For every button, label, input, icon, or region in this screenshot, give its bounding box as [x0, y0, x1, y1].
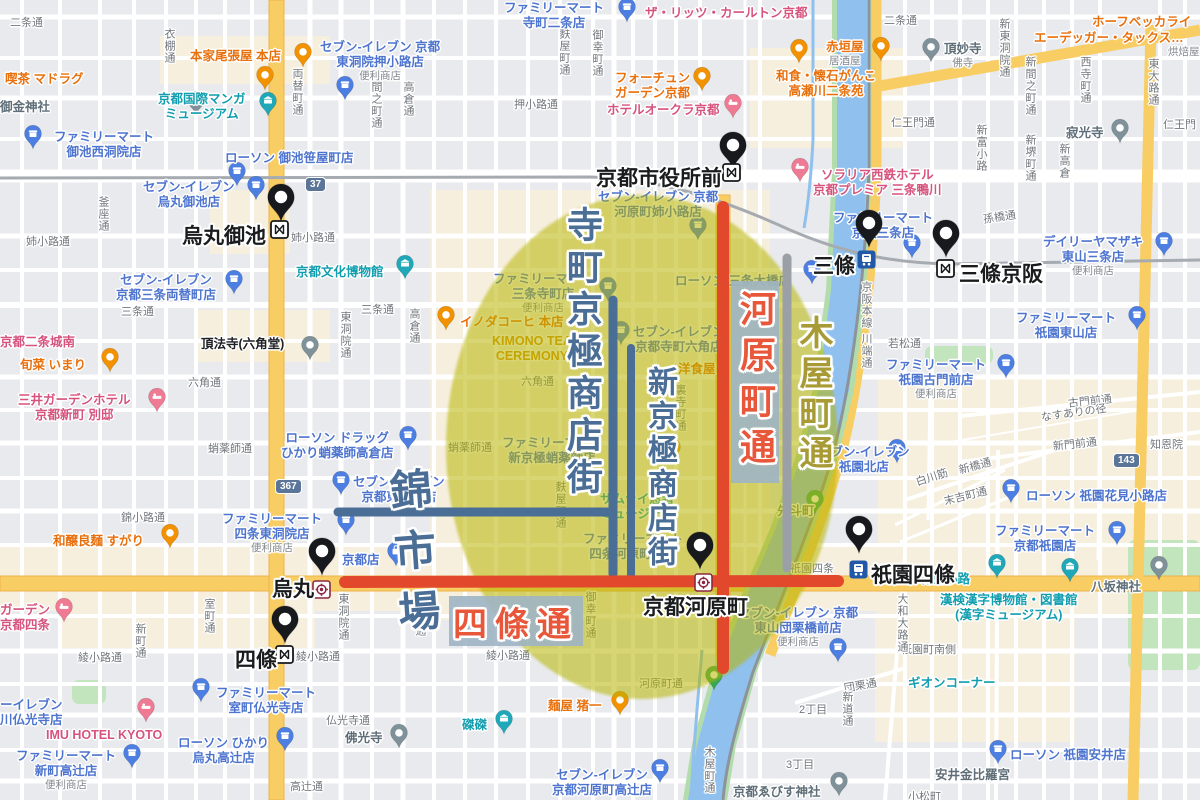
- station-label[interactable]: 祇園四條: [871, 559, 955, 589]
- station-pin[interactable]: [269, 604, 301, 648]
- poi-label[interactable]: ソラリア西鉄ホテル京都プレミア 三条鴨川: [813, 168, 941, 198]
- hankyu-icon: [312, 580, 331, 599]
- poi-pin[interactable]: [395, 254, 415, 282]
- station-label[interactable]: 四條: [235, 644, 277, 674]
- poi-label[interactable]: ファミリーマート御池西洞院店: [54, 130, 154, 160]
- poi-pin[interactable]: [610, 690, 630, 718]
- poi-pin[interactable]: [996, 353, 1016, 381]
- poi-pin[interactable]: [1107, 520, 1127, 548]
- poi-label[interactable]: セブン-イレブン祇園北店: [818, 445, 910, 475]
- poi-pin[interactable]: [336, 510, 356, 538]
- poi-pin[interactable]: [258, 91, 278, 119]
- station-label[interactable]: 烏丸: [272, 573, 314, 603]
- poi-label[interactable]: サムライ忍者ミュージアム: [600, 492, 674, 522]
- poi-label[interactable]: セブン-イレブン京都河原町高辻店: [552, 768, 652, 798]
- poi-pin[interactable]: [436, 305, 456, 333]
- station-label[interactable]: 京都河原町: [643, 591, 748, 621]
- station-label[interactable]: 京都市役所前: [596, 162, 722, 192]
- poi-label[interactable]: ファミリーマート室町仏光寺店: [216, 686, 316, 716]
- poi-label[interactable]: 漢検漢字博物館・図書館(漢字ミュージアム): [940, 593, 1078, 623]
- poi-label[interactable]: KIMONO TEACEREMONY: [492, 334, 572, 364]
- poi-pin[interactable]: [293, 42, 313, 70]
- poi-label[interactable]: 旬菜 いまり: [20, 358, 86, 373]
- poi-label[interactable]: セブン-イレブン烏丸御池店: [143, 180, 235, 210]
- poi-pin[interactable]: [275, 726, 295, 754]
- poi-pin[interactable]: [662, 437, 682, 465]
- poi-pin[interactable]: [598, 276, 618, 304]
- poi-pin[interactable]: [650, 758, 670, 786]
- shijo-dori-road: [0, 576, 1200, 591]
- poi-label[interactable]: IMU HOTEL KYOTO: [46, 728, 162, 743]
- subway-icon: [722, 163, 741, 182]
- poi-pin[interactable]: [1001, 478, 1021, 506]
- poi-pin[interactable]: [1127, 305, 1147, 333]
- poi-pin[interactable]: [790, 157, 810, 185]
- keihan-icon: [849, 560, 868, 579]
- poi-pin[interactable]: [692, 66, 712, 94]
- poi-label[interactable]: 京都文化博物館: [296, 265, 384, 280]
- poi-label[interactable]: 和醸良麺 すがり: [53, 534, 144, 549]
- station-label[interactable]: 三條: [813, 250, 855, 280]
- poi-label[interactable]: セブン-イレブン京都寺町六角店: [633, 325, 725, 355]
- poi-label[interactable]: ファミリーマート祇園東山店: [1016, 311, 1116, 341]
- poi-label[interactable]: 頂法寺(六角堂): [201, 337, 284, 352]
- poi-label[interactable]: 和食・懐石がんこ高瀬川二条苑: [776, 69, 876, 99]
- poi-label[interactable]: ファミリーマート寺町二条店: [504, 1, 604, 31]
- poi-label[interactable]: 烘焙屋: [1168, 46, 1200, 58]
- poi-label[interactable]: 安井金比羅宮: [935, 768, 1010, 783]
- poi-pin[interactable]: [611, 320, 631, 348]
- poi-label[interactable]: ガーデン京都四条: [0, 603, 50, 633]
- poi-pin[interactable]: [23, 124, 43, 152]
- poi-pin[interactable]: [136, 697, 156, 725]
- poi-label[interactable]: セブン-イレブン京都東洞院店: [353, 475, 445, 505]
- poi-label[interactable]: 喫茶 マドラグ: [5, 72, 83, 87]
- poi-label[interactable]: ローソン 祇園花見小路店: [1026, 489, 1167, 504]
- poi-pin[interactable]: [988, 739, 1008, 767]
- poi-label[interactable]: ーイレブン川仏光寺店: [0, 698, 63, 728]
- poi-label[interactable]: イノダコーヒ 本店: [460, 315, 563, 330]
- poi-label[interactable]: 京都国際マンガミュージアム: [158, 92, 246, 122]
- poi-pin[interactable]: [389, 723, 409, 751]
- subway-icon: [936, 259, 955, 278]
- poi-label[interactable]: セブン-イレブン 京都東山団栗橋前店便利商店: [738, 606, 858, 648]
- poi-pin[interactable]: [386, 541, 406, 569]
- poi-pin[interactable]: [54, 597, 74, 625]
- poi-label[interactable]: ローソン 祇園安井店: [1010, 748, 1126, 763]
- poi-pin[interactable]: [871, 36, 891, 64]
- poi-label[interactable]: ファミリーマート四条河原町西店: [583, 532, 683, 562]
- poi-label[interactable]: 頂妙寺佛寺: [944, 42, 982, 69]
- poi-label[interactable]: 麺屋 猪一: [548, 699, 601, 714]
- poi-pin[interactable]: [246, 175, 266, 203]
- poi-pin[interactable]: [122, 743, 142, 771]
- poi-label[interactable]: セブン-イレブン 京都河原町姉小路店: [598, 190, 718, 220]
- poi-pin[interactable]: [147, 387, 167, 415]
- poi-label[interactable]: セブン-イレブン 京都東洞院押小路店便利商店: [320, 40, 440, 82]
- poi-pin[interactable]: [704, 665, 724, 693]
- poi-pin[interactable]: [224, 269, 244, 297]
- poi-label[interactable]: 磔磔: [462, 718, 487, 733]
- poi-label[interactable]: ローソン ひかり烏丸高辻店: [178, 736, 269, 766]
- station-pin[interactable]: [930, 218, 962, 262]
- poi-label[interactable]: 洋食屋: [678, 362, 716, 377]
- poi-pin[interactable]: [100, 347, 120, 375]
- poi-pin[interactable]: [987, 553, 1007, 581]
- poi-pin[interactable]: [1154, 231, 1174, 259]
- poi-label[interactable]: ホテルオークラ京都: [607, 103, 720, 118]
- poi-pin[interactable]: [160, 523, 180, 551]
- hankyu-icon: [694, 573, 713, 592]
- poi-pin[interactable]: [789, 38, 809, 66]
- poi-label[interactable]: ファミリーマート新京極蛸薬師店: [502, 436, 602, 466]
- poi-pin[interactable]: [1110, 118, 1130, 146]
- poi-label[interactable]: フォーチュンガーデン京都: [615, 71, 690, 101]
- keihan-icon: [857, 250, 876, 269]
- station-pin[interactable]: [843, 514, 875, 558]
- poi-pin[interactable]: [398, 425, 418, 453]
- poi-label[interactable]: ファミリーマート京都祇園店: [995, 524, 1095, 554]
- station-pin[interactable]: [853, 208, 885, 252]
- station-label[interactable]: 三條京阪: [959, 258, 1043, 288]
- poi-label[interactable]: 先斗町: [777, 504, 815, 519]
- poi-label[interactable]: ホーフベッカライ: [1092, 15, 1191, 30]
- map-canvas[interactable]: 二条通二条通押小路通姉小路通姉小路通三条通三条通六角通六角通蛸薬師通蛸薬師通錦小…: [0, 0, 1200, 800]
- poi-label[interactable]: ローソン ドラッグひかり蛸薬師高倉店: [281, 431, 394, 461]
- poi-label[interactable]: 佛光寺: [345, 731, 383, 746]
- poi-label[interactable]: ファミリーマート三条寺町店便利商店: [493, 272, 593, 314]
- poi-label[interactable]: 京都店: [342, 553, 380, 568]
- poi-pin[interactable]: [829, 771, 849, 799]
- station-label[interactable]: 烏丸御池: [182, 220, 266, 250]
- poi-pin[interactable]: [331, 470, 351, 498]
- poi-label[interactable]: 赤垣屋居酒屋: [826, 40, 864, 67]
- poi-pin[interactable]: [494, 709, 514, 737]
- poi-label[interactable]: 三井ガーデンホテル京都新町 別邸: [18, 393, 131, 423]
- karasuma-dori-road: [269, 0, 284, 800]
- poi-label[interactable]: ローソン 御池笹屋町店: [225, 151, 353, 166]
- poi-pin[interactable]: [1149, 555, 1169, 583]
- poi-pin[interactable]: [300, 335, 320, 363]
- poi-label[interactable]: セブン-イレブン京都三条両替町店: [116, 273, 216, 303]
- subway-icon: [275, 645, 294, 664]
- poi-pin[interactable]: [617, 0, 637, 25]
- poi-pin[interactable]: [191, 677, 211, 705]
- poi-label[interactable]: 八坂神社: [1091, 580, 1141, 595]
- poi-pin[interactable]: [921, 37, 941, 65]
- poi-pin[interactable]: [1060, 557, 1080, 585]
- poi-label[interactable]: 京都二条城南: [0, 335, 75, 350]
- poi-label[interactable]: 京都ゑびす神社: [733, 785, 821, 800]
- poi-label[interactable]: ローソン 三条大橋店: [675, 274, 791, 289]
- poi-pin[interactable]: [723, 93, 743, 121]
- poi-label[interactable]: 本家尾張屋 本店: [190, 49, 281, 64]
- subway-icon: [270, 220, 289, 239]
- poi-label[interactable]: 寂光寺: [1066, 126, 1104, 141]
- poi-label[interactable]: ファミリーマート新町高辻店便利商店: [16, 749, 116, 791]
- poi-label[interactable]: エーデッガー・タックス…: [1034, 31, 1184, 46]
- poi-label[interactable]: ファミリーマート祇園古門前店便利商店: [886, 358, 986, 400]
- poi-label[interactable]: ザ・リッツ・カールトン京都: [645, 6, 808, 21]
- poi-label[interactable]: デイリーヤマザキ東山三条店便利商店: [1043, 235, 1143, 277]
- poi-pin[interactable]: [255, 65, 275, 93]
- poi-label[interactable]: 御金神社: [0, 100, 50, 115]
- poi-label[interactable]: ギオンコーナー: [908, 676, 996, 691]
- station-pin[interactable]: [684, 530, 716, 574]
